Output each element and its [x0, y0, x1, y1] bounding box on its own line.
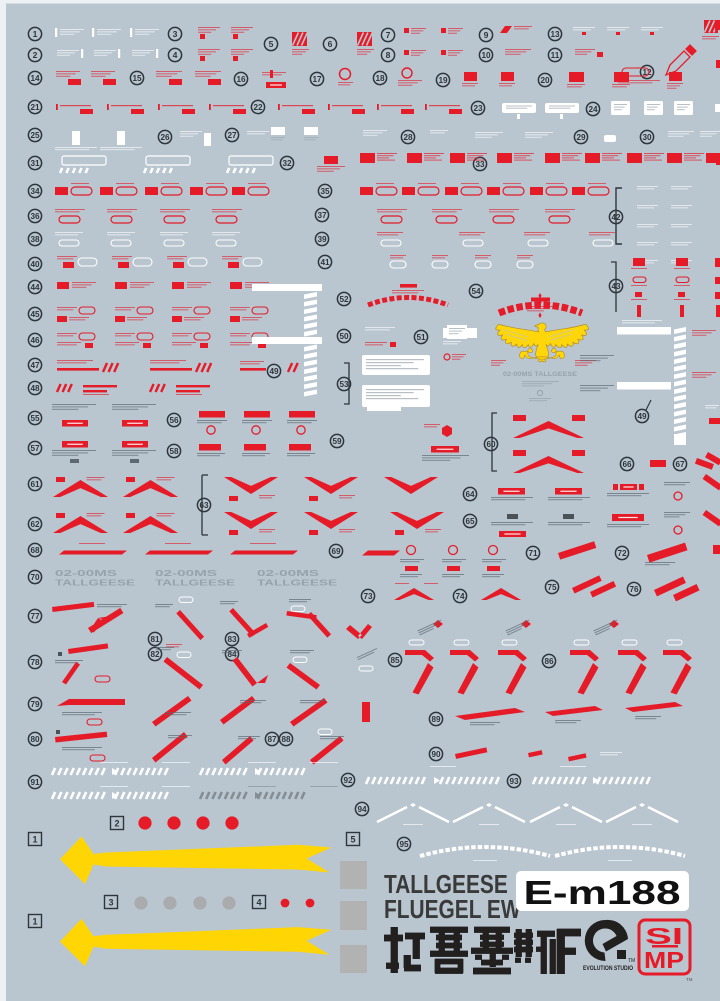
- svg-text:30: 30: [642, 133, 652, 142]
- svg-text:66: 66: [622, 460, 632, 469]
- svg-text:1: 1: [33, 29, 38, 39]
- svg-text:82: 82: [150, 650, 160, 659]
- svg-text:52: 52: [339, 295, 349, 304]
- svg-text:47: 47: [30, 361, 40, 370]
- svg-text:89: 89: [431, 715, 441, 724]
- svg-text:41: 41: [320, 258, 330, 267]
- svg-text:93: 93: [509, 777, 519, 786]
- svg-text:TALLGEESE: TALLGEESE: [155, 578, 235, 588]
- svg-text:58: 58: [169, 447, 179, 456]
- svg-text:32: 32: [282, 159, 292, 168]
- svg-text:37: 37: [317, 211, 327, 220]
- svg-text:19: 19: [438, 76, 448, 85]
- svg-text:1: 1: [32, 916, 37, 926]
- svg-text:17: 17: [312, 75, 322, 84]
- svg-text:59: 59: [332, 437, 342, 446]
- svg-text:02-00MS: 02-00MS: [55, 568, 117, 578]
- svg-text:75: 75: [547, 583, 557, 592]
- svg-text:54: 54: [471, 287, 481, 296]
- svg-text:84: 84: [227, 650, 237, 659]
- svg-text:3: 3: [108, 897, 113, 907]
- svg-text:18: 18: [375, 74, 385, 83]
- svg-text:33: 33: [475, 160, 485, 169]
- svg-text:46: 46: [30, 336, 40, 345]
- svg-text:9: 9: [484, 30, 489, 40]
- svg-text:29: 29: [576, 133, 586, 142]
- svg-text:74: 74: [455, 592, 465, 601]
- svg-text:63: 63: [199, 501, 209, 510]
- svg-text:40: 40: [30, 260, 40, 269]
- svg-text:51: 51: [416, 333, 426, 342]
- svg-text:28: 28: [403, 133, 413, 142]
- svg-text:TM: TM: [628, 958, 635, 964]
- svg-text:72: 72: [617, 549, 627, 558]
- svg-text:61: 61: [30, 480, 40, 489]
- svg-text:87: 87: [267, 735, 277, 744]
- svg-text:4: 4: [173, 50, 178, 60]
- svg-text:20: 20: [540, 76, 550, 85]
- svg-text:80: 80: [30, 735, 40, 744]
- svg-text:7: 7: [386, 30, 391, 40]
- svg-text:62: 62: [30, 520, 40, 529]
- svg-text:16: 16: [236, 75, 246, 84]
- svg-text:34: 34: [30, 187, 40, 196]
- svg-text:88: 88: [281, 735, 291, 744]
- svg-text:36: 36: [30, 212, 40, 221]
- svg-text:8: 8: [386, 50, 391, 60]
- svg-text:TALLGEESE: TALLGEESE: [55, 578, 135, 588]
- svg-text:TALLGEESE: TALLGEESE: [257, 578, 337, 588]
- svg-text:15: 15: [132, 74, 142, 83]
- svg-text:EVOLUTION STUDIO: EVOLUTION STUDIO: [583, 965, 633, 972]
- svg-text:25: 25: [30, 131, 40, 140]
- svg-text:23: 23: [473, 104, 483, 113]
- svg-text:68: 68: [30, 546, 40, 555]
- svg-text:53: 53: [339, 380, 349, 389]
- svg-text:10: 10: [481, 51, 491, 60]
- svg-text:76: 76: [629, 585, 639, 594]
- svg-text:83: 83: [227, 635, 237, 644]
- svg-text:49: 49: [637, 412, 647, 421]
- svg-text:02-00MS TALLGEESE: 02-00MS TALLGEESE: [503, 371, 578, 378]
- svg-text:48: 48: [30, 384, 40, 393]
- svg-text:TM: TM: [686, 977, 693, 982]
- svg-text:45: 45: [30, 310, 40, 319]
- svg-text:2: 2: [33, 50, 38, 60]
- svg-text:35: 35: [320, 187, 330, 196]
- svg-text:FLUEGEL EW: FLUEGEL EW: [384, 895, 521, 923]
- svg-text:95: 95: [399, 840, 409, 849]
- svg-text:90: 90: [431, 750, 441, 759]
- svg-text:22: 22: [253, 103, 263, 112]
- svg-text:6: 6: [328, 39, 333, 49]
- svg-text:79: 79: [30, 700, 40, 709]
- svg-text:60: 60: [486, 440, 496, 449]
- svg-text:43: 43: [611, 282, 621, 291]
- svg-text:55: 55: [30, 414, 40, 423]
- svg-text:50: 50: [339, 332, 349, 341]
- svg-text:MP: MP: [644, 947, 684, 973]
- svg-text:1: 1: [32, 834, 37, 844]
- svg-text:24: 24: [588, 105, 598, 114]
- svg-text:02-00MS: 02-00MS: [155, 568, 217, 578]
- svg-text:5: 5: [269, 39, 274, 49]
- svg-text:65: 65: [465, 517, 475, 526]
- svg-text:27: 27: [227, 131, 237, 140]
- svg-text:5: 5: [350, 834, 355, 844]
- svg-text:E-m188: E-m188: [524, 874, 681, 911]
- svg-text:71: 71: [528, 549, 538, 558]
- svg-text:21: 21: [30, 103, 40, 112]
- svg-text:69: 69: [331, 547, 341, 556]
- svg-text:2: 2: [114, 818, 119, 828]
- svg-text:42: 42: [611, 213, 621, 222]
- svg-text:49: 49: [269, 367, 279, 376]
- svg-text:26: 26: [160, 133, 170, 142]
- svg-text:86: 86: [544, 657, 554, 666]
- svg-text:13: 13: [550, 30, 560, 39]
- svg-text:02-00MS: 02-00MS: [257, 568, 319, 578]
- svg-text:14: 14: [30, 74, 40, 83]
- svg-text:4: 4: [256, 897, 261, 907]
- svg-text:57: 57: [30, 444, 40, 453]
- svg-text:92: 92: [343, 776, 353, 785]
- svg-text:44: 44: [30, 283, 40, 292]
- svg-text:85: 85: [390, 656, 400, 665]
- svg-text:70: 70: [30, 573, 40, 582]
- svg-text:73: 73: [363, 592, 373, 601]
- svg-text:64: 64: [465, 490, 475, 499]
- svg-text:31: 31: [30, 159, 40, 168]
- svg-text:38: 38: [30, 235, 40, 244]
- svg-text:56: 56: [169, 416, 179, 425]
- svg-text:77: 77: [30, 612, 40, 621]
- svg-text:81: 81: [150, 635, 160, 644]
- svg-text:11: 11: [551, 51, 560, 60]
- svg-text:91: 91: [30, 778, 40, 787]
- svg-text:94: 94: [357, 805, 367, 814]
- svg-text:78: 78: [30, 658, 40, 667]
- svg-text:3: 3: [173, 29, 178, 39]
- svg-text:39: 39: [317, 235, 327, 244]
- svg-text:67: 67: [675, 460, 685, 469]
